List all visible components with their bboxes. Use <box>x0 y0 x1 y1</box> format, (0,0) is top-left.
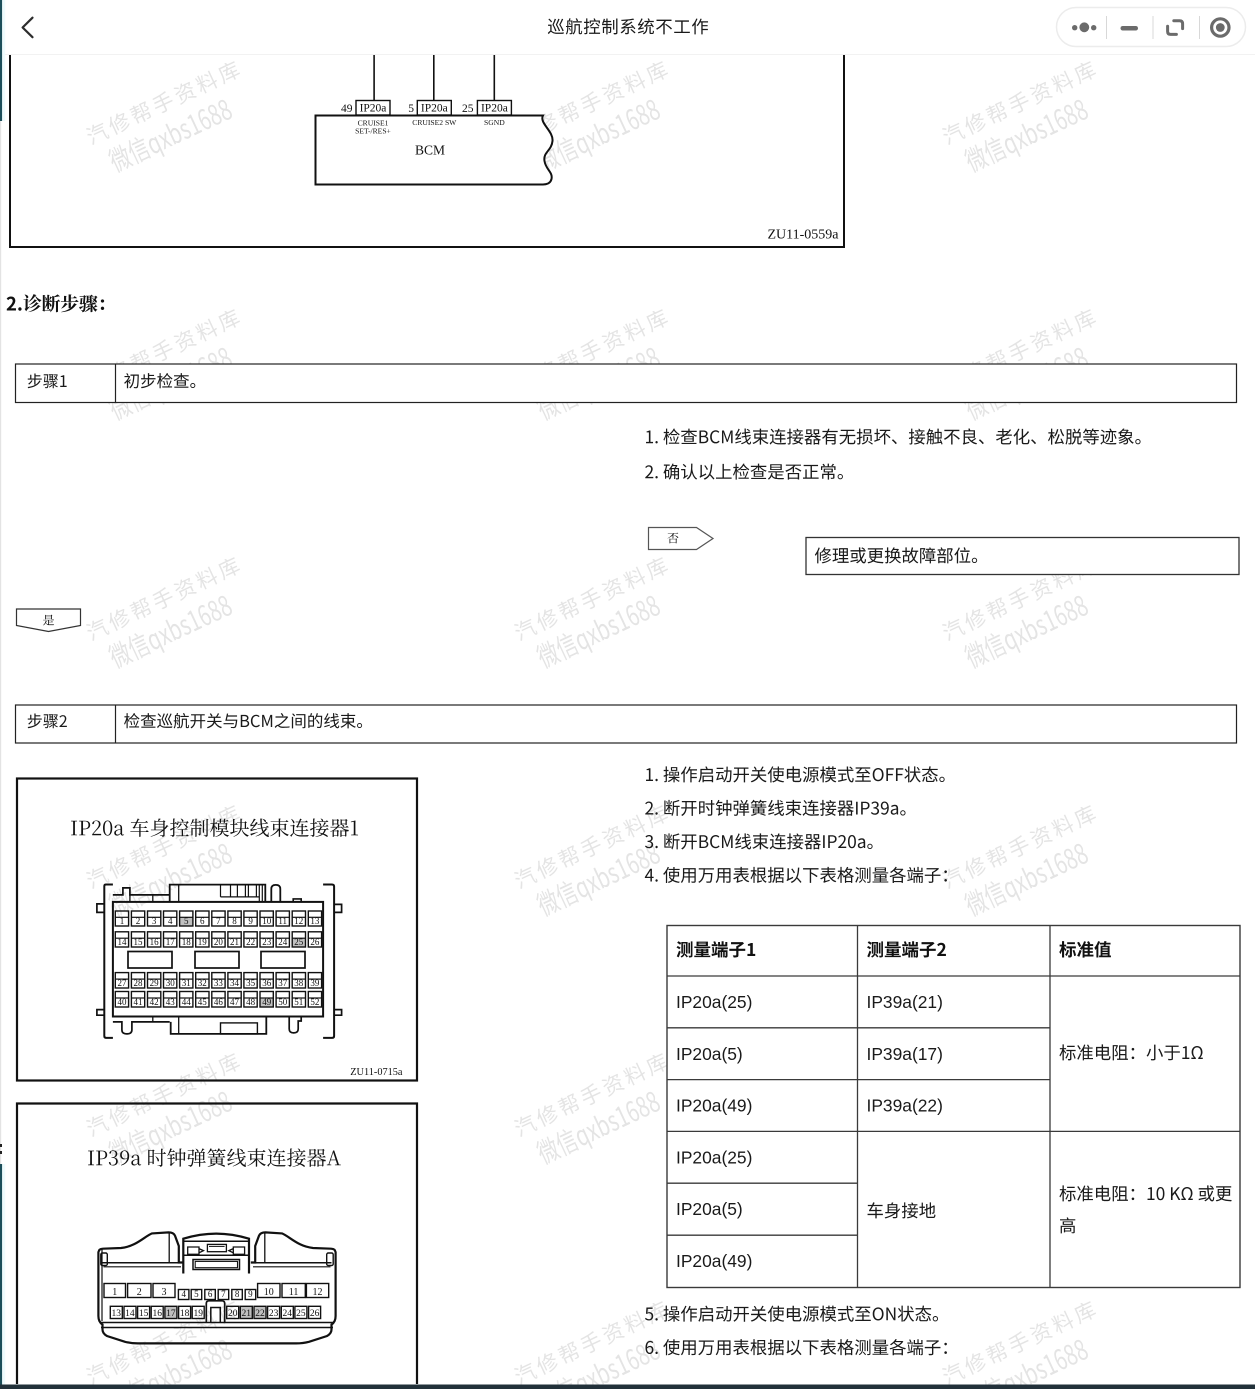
svg-text:14: 14 <box>125 1309 135 1319</box>
svg-text:18: 18 <box>182 937 192 947</box>
svg-text:4: 4 <box>168 916 173 926</box>
svg-text:35: 35 <box>246 978 256 988</box>
svg-text:5: 5 <box>194 1289 199 1299</box>
svg-text:14: 14 <box>118 937 128 947</box>
svg-text:9: 9 <box>248 916 253 926</box>
svg-text:30: 30 <box>166 978 176 988</box>
svg-text:31: 31 <box>182 978 191 988</box>
svg-text:15: 15 <box>134 937 144 947</box>
svg-text:25: 25 <box>462 103 474 115</box>
svg-text:11: 11 <box>278 916 287 926</box>
svg-text:IP20a: IP20a <box>360 103 387 115</box>
svg-text:28: 28 <box>134 978 144 988</box>
svg-text:2: 2 <box>136 916 141 926</box>
svg-text:40: 40 <box>118 997 128 1007</box>
svg-text:26: 26 <box>310 1309 320 1319</box>
svg-text:CRUISE2 SW: CRUISE2 SW <box>412 118 457 127</box>
svg-text:19: 19 <box>198 937 208 947</box>
svg-text:39: 39 <box>310 978 320 988</box>
svg-text:ZU11-0715a: ZU11-0715a <box>350 1067 403 1078</box>
svg-text:5: 5 <box>184 916 189 926</box>
svg-text:17: 17 <box>166 937 176 947</box>
svg-text:8: 8 <box>232 916 237 926</box>
svg-text:49: 49 <box>262 997 272 1007</box>
svg-text:SET-/RES+: SET-/RES+ <box>355 127 391 136</box>
svg-text:IP20a: IP20a <box>421 103 448 115</box>
svg-text:48: 48 <box>246 997 256 1007</box>
svg-text:49: 49 <box>341 103 353 115</box>
svg-text:34: 34 <box>230 978 240 988</box>
svg-text:3: 3 <box>152 916 157 926</box>
svg-text:ZU11-0559a: ZU11-0559a <box>767 228 839 243</box>
svg-text:17: 17 <box>166 1309 176 1319</box>
svg-text:13: 13 <box>310 916 320 926</box>
svg-text:38: 38 <box>294 978 304 988</box>
svg-text:12: 12 <box>294 916 303 926</box>
svg-text:7: 7 <box>221 1289 226 1299</box>
svg-text:13: 13 <box>112 1309 122 1319</box>
svg-text:16: 16 <box>152 1309 162 1319</box>
svg-text:IP39a(17): IP39a(17) <box>867 1044 943 1064</box>
svg-text:52: 52 <box>310 997 319 1007</box>
svg-text:IP20a(25): IP20a(25) <box>676 1147 752 1167</box>
svg-text:33: 33 <box>214 978 224 988</box>
svg-text:18: 18 <box>180 1309 190 1319</box>
svg-text:IP39a(21): IP39a(21) <box>867 992 943 1012</box>
svg-text:IP20a(5): IP20a(5) <box>676 1044 743 1064</box>
svg-text:3: 3 <box>162 1287 167 1298</box>
svg-text:24: 24 <box>283 1309 293 1319</box>
svg-text:42: 42 <box>150 997 159 1007</box>
svg-text:IP20a(49): IP20a(49) <box>676 1096 752 1116</box>
svg-text:45: 45 <box>198 997 208 1007</box>
svg-text:IP20a: IP20a <box>481 103 508 115</box>
svg-text:19: 19 <box>193 1309 203 1319</box>
svg-text:20: 20 <box>228 1309 238 1319</box>
svg-text:21: 21 <box>230 937 239 947</box>
svg-text:IP20a(5): IP20a(5) <box>676 1199 743 1219</box>
svg-text:32: 32 <box>198 978 207 988</box>
svg-text:44: 44 <box>182 997 192 1007</box>
svg-text:11: 11 <box>289 1287 299 1298</box>
svg-text:5: 5 <box>408 103 414 115</box>
svg-text:50: 50 <box>278 997 288 1007</box>
svg-text:26: 26 <box>310 937 320 947</box>
svg-text:36: 36 <box>262 978 272 988</box>
svg-text:IP39a(22): IP39a(22) <box>867 1096 943 1116</box>
svg-text:24: 24 <box>278 937 288 947</box>
svg-text:6: 6 <box>200 916 205 926</box>
svg-text:2: 2 <box>137 1287 142 1298</box>
svg-text:7: 7 <box>216 916 221 926</box>
svg-text:6: 6 <box>208 1289 213 1299</box>
svg-text:10: 10 <box>264 1287 274 1298</box>
svg-text:25: 25 <box>294 937 304 947</box>
svg-text:1: 1 <box>112 1287 117 1298</box>
svg-text:23: 23 <box>262 937 272 947</box>
svg-text:20: 20 <box>214 937 224 947</box>
svg-text:1: 1 <box>120 916 125 926</box>
svg-text:23: 23 <box>269 1309 279 1319</box>
svg-text:22: 22 <box>255 1309 265 1319</box>
svg-text:46: 46 <box>214 997 224 1007</box>
svg-text:4: 4 <box>181 1289 186 1299</box>
svg-text:29: 29 <box>150 978 160 988</box>
svg-text:SGND: SGND <box>484 118 505 127</box>
svg-text:10: 10 <box>262 916 272 926</box>
svg-text:8: 8 <box>235 1289 240 1299</box>
svg-text:9: 9 <box>248 1289 253 1299</box>
svg-text:12: 12 <box>313 1287 323 1298</box>
svg-text:16: 16 <box>150 937 160 947</box>
svg-text:37: 37 <box>278 978 288 988</box>
svg-text:25: 25 <box>296 1309 306 1319</box>
svg-text:43: 43 <box>166 997 176 1007</box>
svg-text:22: 22 <box>246 937 255 947</box>
svg-text:IP20a(49): IP20a(49) <box>676 1251 752 1271</box>
svg-text:27: 27 <box>118 978 128 988</box>
svg-text:21: 21 <box>242 1309 252 1319</box>
svg-text:47: 47 <box>230 997 240 1007</box>
svg-text:41: 41 <box>134 997 143 1007</box>
svg-text:51: 51 <box>294 997 303 1007</box>
svg-text:BCM: BCM <box>415 143 445 158</box>
svg-text:IP20a(25): IP20a(25) <box>676 992 752 1012</box>
svg-text:15: 15 <box>139 1309 149 1319</box>
